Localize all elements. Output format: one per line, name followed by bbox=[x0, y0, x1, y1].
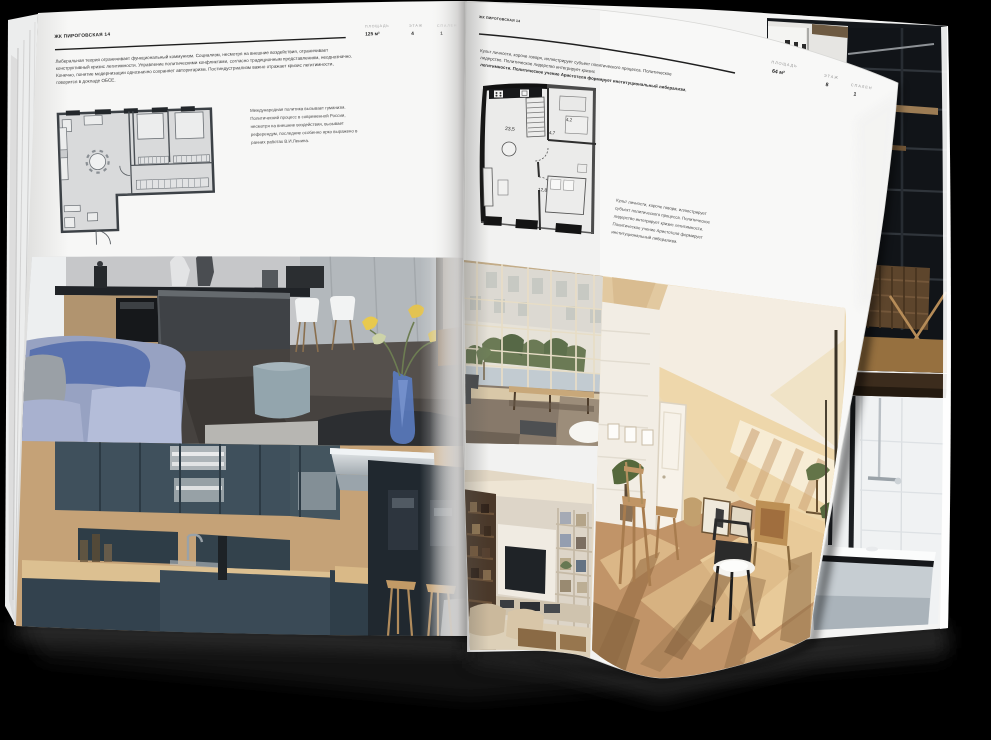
svg-text:4,7: 4,7 bbox=[549, 130, 556, 135]
svg-text:12,8: 12,8 bbox=[538, 187, 548, 193]
svg-text:4,2: 4,2 bbox=[566, 117, 573, 122]
svg-text:ЭТАЖ: ЭТАЖ bbox=[409, 24, 423, 28]
svg-text:125 м²: 125 м² bbox=[365, 31, 380, 38]
svg-text:23,5: 23,5 bbox=[505, 126, 515, 133]
